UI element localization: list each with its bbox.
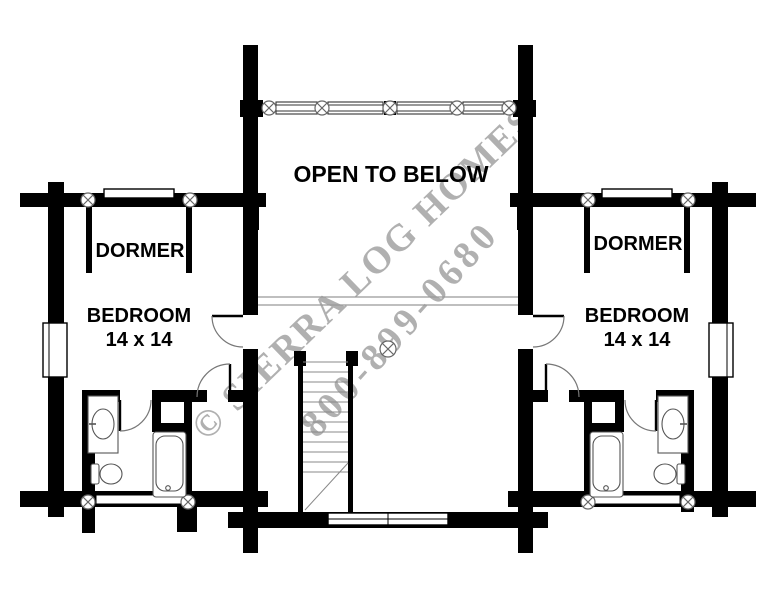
bathroom-left-fixtures [88,396,186,497]
bathtub-icon [153,432,186,497]
log-end-icon [681,495,695,509]
log-end-icon [681,193,695,207]
bedroom-left-size: 14 x 14 [106,329,174,351]
railing-log [397,102,452,114]
window-top-left [104,189,174,198]
floor-plan-page: © SIERRA LOG HOMES 800-899-0680 [0,0,776,600]
bathroom-right-fixtures [590,396,688,497]
balcony-edge [258,297,518,305]
toilet-icon [91,464,122,484]
door-bath-right-inner [625,400,656,431]
log-end-icon [450,101,464,115]
railing-log [276,102,317,114]
log-end-icon [315,101,329,115]
log-end-icon [383,101,397,115]
bedroom-left-label: BEDROOM [87,305,191,327]
open-to-below-label: OPEN TO BELOW [293,161,488,187]
railing-log [463,102,504,114]
log-end-icon [183,193,197,207]
floor-plan-drawing: © SIERRA LOG HOMES 800-899-0680 [0,0,776,600]
log-end-icon [581,193,595,207]
log-end-icon [262,101,276,115]
railing-log [328,102,383,114]
bedroom-right-label: BEDROOM [585,305,689,327]
log-end-icon [81,193,95,207]
door-bath-left-inner [120,400,151,431]
door-bedroom-right-entry [533,316,564,347]
bedroom-right-size: 14 x 14 [604,329,672,351]
log-end-icon [502,101,516,115]
door-bedroom-left-entry [212,316,243,347]
window-right-wall [709,323,733,377]
dormer-left-label: DORMER [96,240,185,262]
toilet-icon [654,464,685,484]
bathtub-icon [590,432,623,497]
window-top-right [602,189,672,198]
window-bottom-center [328,513,448,525]
stair-break-line [305,463,348,510]
dormer-right-label: DORMER [594,233,683,255]
log-post-icon [380,341,396,357]
window-left-wall [43,323,67,377]
log-end-icon [81,495,95,509]
walls [20,45,756,553]
